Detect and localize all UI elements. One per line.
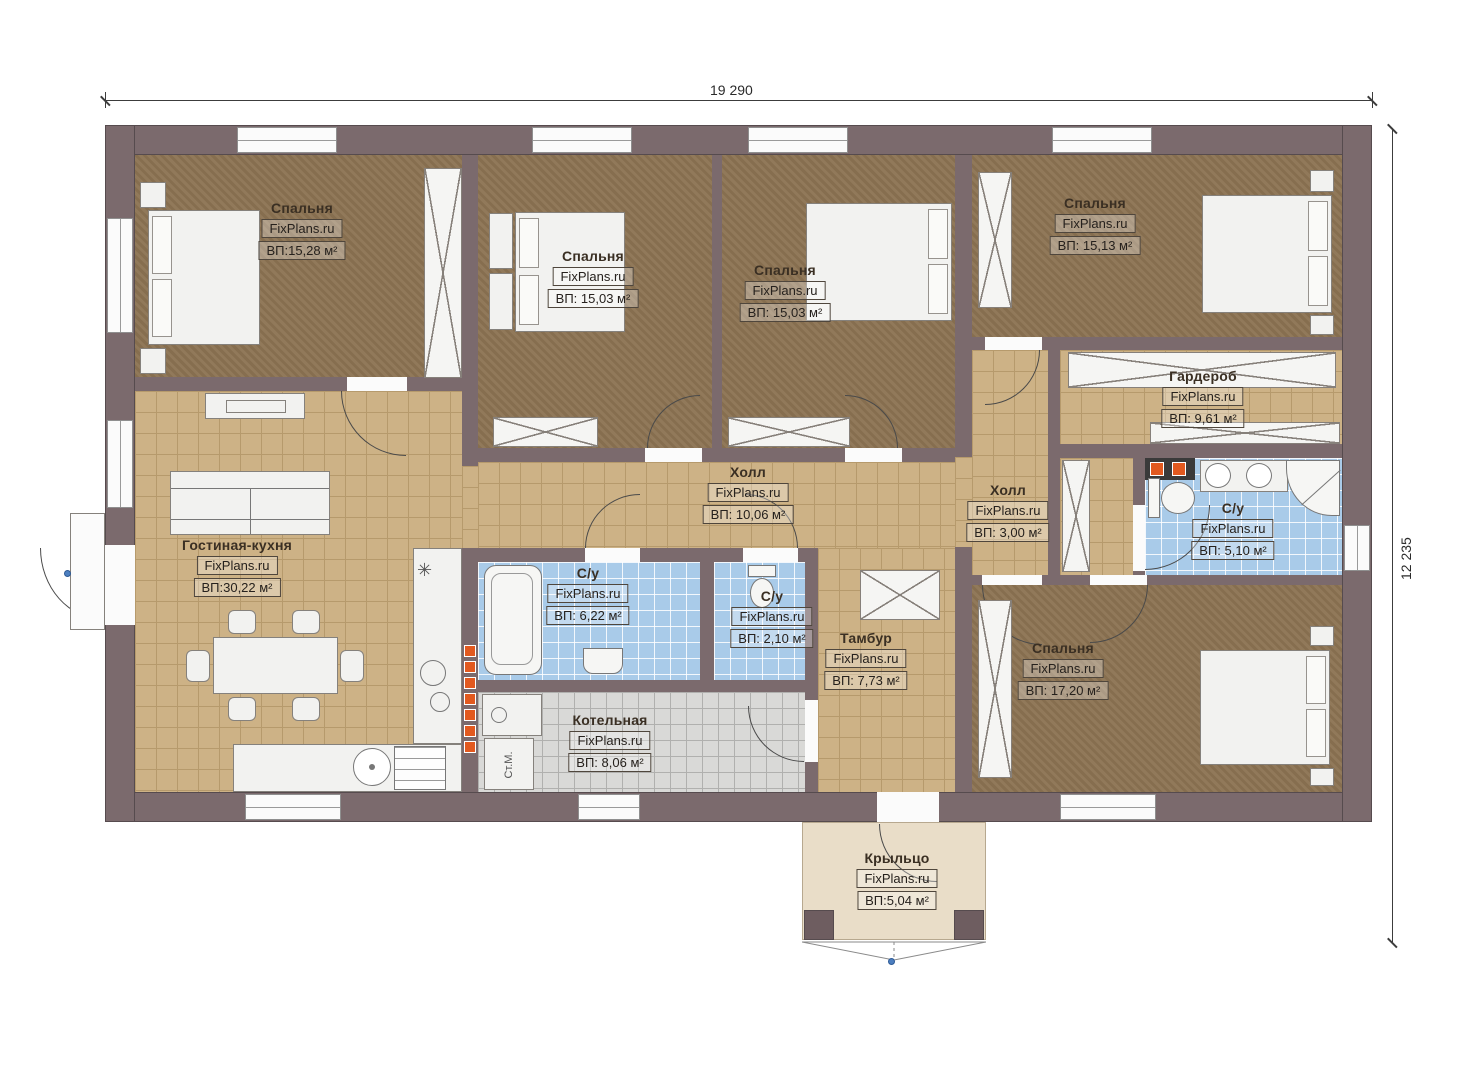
room-area: ВП: 15,13 м²: [1050, 236, 1141, 255]
door-gap-entry-left: [105, 545, 135, 625]
room-name: Тамбур: [824, 630, 907, 646]
bed: [1202, 195, 1332, 313]
kitchen-symbol-icon: ✳: [417, 560, 432, 581]
window-living-bottom: [245, 794, 341, 820]
dresser: [489, 213, 513, 269]
room-label-bedroom3: Спальня FixPlans.ru ВП: 15,03 м²: [740, 262, 831, 322]
watermark: FixPlans.ru: [1054, 214, 1135, 233]
watermark: FixPlans.ru: [261, 219, 342, 238]
wardrobe-unit: [860, 570, 940, 620]
wall-exterior-right: [1342, 125, 1372, 822]
right-dimension-line: [1392, 128, 1393, 942]
room-area: ВП: 7,73 м²: [824, 671, 907, 690]
door-gap-porch: [877, 792, 939, 822]
watermark: FixPlans.ru: [731, 607, 812, 626]
window-bedroom1-left: [107, 218, 133, 333]
bed: [1200, 650, 1330, 765]
radiator-segment: [464, 725, 476, 737]
room-area: ВП: 3,00 м²: [966, 523, 1049, 542]
room-area: ВП: 8,06 м²: [568, 753, 651, 772]
room-label-bath-main: С/у FixPlans.ru ВП: 6,22 м²: [546, 565, 629, 625]
opening-living-hall: [462, 466, 478, 548]
room-label-hall-small: Холл FixPlans.ru ВП: 3,00 м²: [966, 482, 1049, 542]
washbasin: [583, 648, 623, 674]
wardrobe-unit: [978, 600, 1012, 778]
room-name: Спальня: [740, 262, 831, 278]
room-label-bedroom4: Спальня FixPlans.ru ВП: 15,13 м²: [1050, 195, 1141, 255]
nightstand: [1310, 626, 1334, 646]
bathtub: [484, 565, 542, 675]
wall-v4: [1048, 337, 1060, 577]
dining-chair: [292, 610, 320, 634]
room-label-tambour: Тамбур FixPlans.ru ВП: 7,73 м²: [824, 630, 907, 690]
watermark: FixPlans.ru: [856, 869, 937, 888]
dining-chair: [292, 697, 320, 721]
room-name: Холл: [703, 464, 794, 480]
entry-marker-dot: [64, 570, 71, 577]
watermark: FixPlans.ru: [744, 281, 825, 300]
watermark: FixPlans.ru: [196, 556, 277, 575]
room-label-bedroom2: Спальня FixPlans.ru ВП: 15,03 м²: [548, 248, 639, 308]
door-gap-bath-main: [585, 548, 640, 562]
window-bedroom5-bottom: [1060, 794, 1156, 820]
dining-chair: [186, 650, 210, 682]
door-gap-bath-guest: [743, 548, 798, 562]
room-label-bedroom1: Спальня FixPlans.ru ВП:15,28 м²: [258, 200, 345, 260]
watermark: FixPlans.ru: [1162, 387, 1243, 406]
porch-marker-dot: [888, 958, 895, 965]
watermark: FixPlans.ru: [547, 584, 628, 603]
dim-ext: [1372, 92, 1373, 108]
width-dimension: 19 290: [710, 82, 753, 98]
radiator-segment: [464, 693, 476, 705]
dining-chair: [228, 610, 256, 634]
radiator-segment: [1172, 462, 1186, 476]
room-name: Спальня: [548, 248, 639, 264]
door-gap-boiler: [805, 700, 818, 762]
room-name: Спальня: [258, 200, 345, 216]
wardrobe-unit: [493, 417, 598, 447]
washing-machine: Ст.М.: [484, 738, 534, 790]
wardrobe-unit: [978, 172, 1012, 308]
room-area: ВП:15,28 м²: [258, 241, 345, 260]
nightstand: [1310, 315, 1334, 335]
nightstand: [140, 182, 166, 208]
wall-v5: [700, 562, 714, 680]
dining-chair: [228, 697, 256, 721]
room-area: ВП:5,04 м²: [857, 891, 937, 910]
watermark: FixPlans.ru: [967, 501, 1048, 520]
room-area: ВП: 9,61 м²: [1161, 409, 1244, 428]
room-name: С/у: [730, 588, 813, 604]
watermark: FixPlans.ru: [552, 267, 633, 286]
room-area: ВП: 6,22 м²: [546, 606, 629, 625]
porch-post: [954, 910, 984, 940]
wardrobe-unit: [424, 168, 462, 378]
radiator-segment: [464, 677, 476, 689]
toilet-tank: [748, 565, 776, 577]
room-name: Крыльцо: [856, 850, 937, 866]
room-name: Гостиная-кухня: [182, 537, 292, 553]
room-label-boiler: Котельная FixPlans.ru ВП: 8,06 м²: [568, 712, 651, 772]
room-area: ВП: 15,03 м²: [548, 289, 639, 308]
dim-ext: [105, 92, 106, 108]
toilet-bowl: [1161, 482, 1195, 514]
watermark: FixPlans.ru: [707, 483, 788, 502]
door-gap-bedroom5-b: [1090, 575, 1147, 585]
kitchen-sink: [353, 748, 391, 786]
washing-machine-label: Ст.М.: [503, 740, 515, 790]
room-name: Спальня: [1050, 195, 1141, 211]
door-gap-bath-master: [1133, 505, 1145, 571]
room-label-bedroom5: Спальня FixPlans.ru ВП: 17,20 м²: [1018, 640, 1109, 700]
watermark: FixPlans.ru: [1192, 519, 1273, 538]
bed: [148, 210, 260, 345]
room-name: Холл: [966, 482, 1049, 498]
wardrobe-unit: [728, 417, 850, 447]
window-boiler-bottom: [578, 794, 640, 820]
room-name: Спальня: [1018, 640, 1109, 656]
stove: [394, 746, 446, 790]
sink: [1246, 463, 1272, 488]
radiator-segment: [464, 741, 476, 753]
radiator-segment: [464, 709, 476, 721]
sofa: [170, 471, 330, 535]
room-area: ВП: 10,06 м²: [703, 505, 794, 524]
room-name: Котельная: [568, 712, 651, 728]
room-name: С/у: [1191, 500, 1274, 516]
door-gap-bedroom1: [347, 377, 407, 391]
porch-post: [804, 910, 834, 940]
door-gap-bedroom3: [845, 448, 902, 462]
top-dimension-line: [105, 100, 1372, 101]
window-bedroom1-top: [237, 127, 337, 153]
door-gap-bedroom4: [985, 337, 1042, 350]
window-bath-master-right: [1344, 525, 1370, 571]
floor-plan: 19 290 12 235: [0, 0, 1474, 1080]
room-area: ВП: 2,10 м²: [730, 629, 813, 648]
door-gap-bedroom5-a: [982, 575, 1042, 585]
cooktop-burner: [430, 692, 450, 712]
wall-h7: [478, 680, 805, 692]
room-name: Гардероб: [1161, 368, 1244, 384]
window-bedroom3-top: [748, 127, 848, 153]
window-living-left: [107, 420, 133, 508]
nightstand: [1310, 170, 1334, 192]
watermark: FixPlans.ru: [825, 649, 906, 668]
toilet-tank: [1148, 478, 1160, 518]
room-label-living-kitchen: Гостиная-кухня FixPlans.ru ВП:30,22 м²: [182, 537, 292, 597]
room-name: С/у: [546, 565, 629, 581]
room-label-porch: Крыльцо FixPlans.ru ВП:5,04 м²: [856, 850, 937, 910]
entry-landing: [70, 513, 105, 630]
tv-console: [205, 393, 305, 419]
height-dimension: 12 235: [1398, 537, 1414, 580]
watermark: FixPlans.ru: [569, 731, 650, 750]
radiator-segment: [464, 645, 476, 657]
wall-h4: [1060, 444, 1342, 458]
dresser: [489, 273, 513, 330]
room-area: ВП: 15,03 м²: [740, 303, 831, 322]
nightstand: [1310, 768, 1334, 786]
dining-chair: [340, 650, 364, 682]
room-area: ВП:30,22 м²: [193, 578, 280, 597]
boiler-unit: [482, 694, 542, 736]
radiator-segment: [464, 661, 476, 673]
door-gap-bedroom2: [645, 448, 702, 462]
sink: [1205, 463, 1231, 488]
room-area: ВП: 17,20 м²: [1018, 681, 1109, 700]
room-label-bath-master: С/у FixPlans.ru ВП: 5,10 м²: [1191, 500, 1274, 560]
window-bedroom4-top: [1052, 127, 1152, 153]
radiator-segment: [1150, 462, 1164, 476]
wall-v2: [712, 155, 722, 450]
nightstand: [140, 348, 166, 374]
room-area: ВП: 5,10 м²: [1191, 541, 1274, 560]
dining-table: [213, 637, 338, 694]
room-label-hall-main: Холл FixPlans.ru ВП: 10,06 м²: [703, 464, 794, 524]
watermark: FixPlans.ru: [1022, 659, 1103, 678]
room-label-bath-guest: С/у FixPlans.ru ВП: 2,10 м²: [730, 588, 813, 648]
window-bedroom2-top: [532, 127, 632, 153]
wall-h1: [135, 377, 462, 391]
room-label-wardrobe: Гардероб FixPlans.ru ВП: 9,61 м²: [1161, 368, 1244, 428]
cooktop-burner: [420, 660, 446, 686]
wardrobe-unit: [1062, 460, 1090, 572]
